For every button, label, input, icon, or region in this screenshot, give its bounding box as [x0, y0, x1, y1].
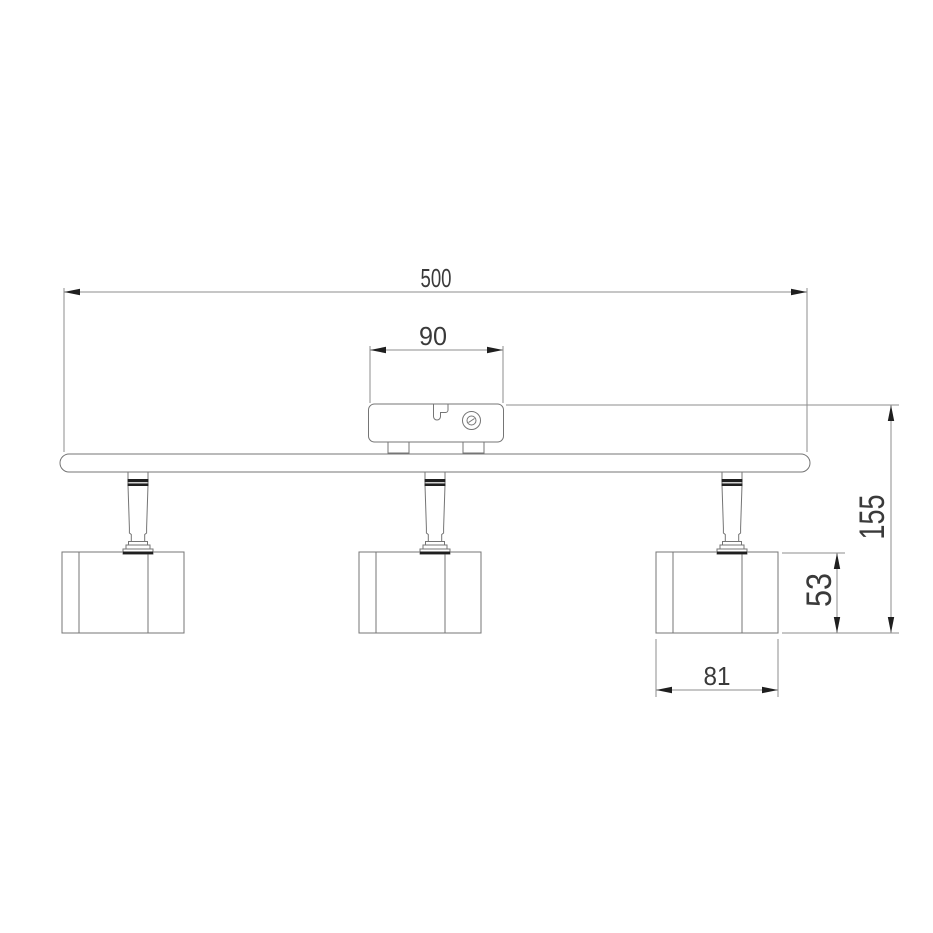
spot-head-left	[62, 552, 184, 633]
dimension-label-90: 90	[419, 321, 447, 351]
arrowhead-top	[888, 405, 894, 421]
dimension-label-500: 500	[421, 263, 452, 293]
bracket-foot-left	[388, 442, 409, 453]
arrowhead-right	[487, 347, 503, 353]
dimension-bracket-width: 90	[370, 321, 503, 403]
arrowhead-right	[791, 289, 807, 295]
mounting-bracket	[369, 404, 504, 453]
dimension-label-53: 53	[800, 573, 839, 607]
arrowhead-left	[656, 687, 672, 693]
bracket-body	[369, 404, 504, 442]
ceiling-bar	[60, 454, 810, 472]
dimension-head-height: 53	[782, 553, 845, 633]
technical-drawing-canvas: 500 90 155 53 81	[0, 0, 933, 933]
arrowhead-bottom	[888, 617, 894, 633]
spot-head-middle	[359, 552, 481, 633]
arrowhead-left	[64, 289, 80, 295]
spot-head-right	[656, 552, 778, 633]
arrowhead-left	[370, 347, 386, 353]
arrowhead-bottom	[834, 617, 840, 633]
stem-right	[717, 472, 747, 554]
arrowhead-right	[762, 687, 778, 693]
arrowhead-top	[834, 553, 840, 569]
dimension-head-width: 81	[656, 639, 778, 697]
stem-left	[123, 472, 153, 554]
stem-middle	[420, 472, 450, 554]
dimension-label-155: 155	[853, 495, 892, 540]
dimension-label-81: 81	[704, 661, 731, 691]
bracket-foot-right	[463, 442, 484, 453]
